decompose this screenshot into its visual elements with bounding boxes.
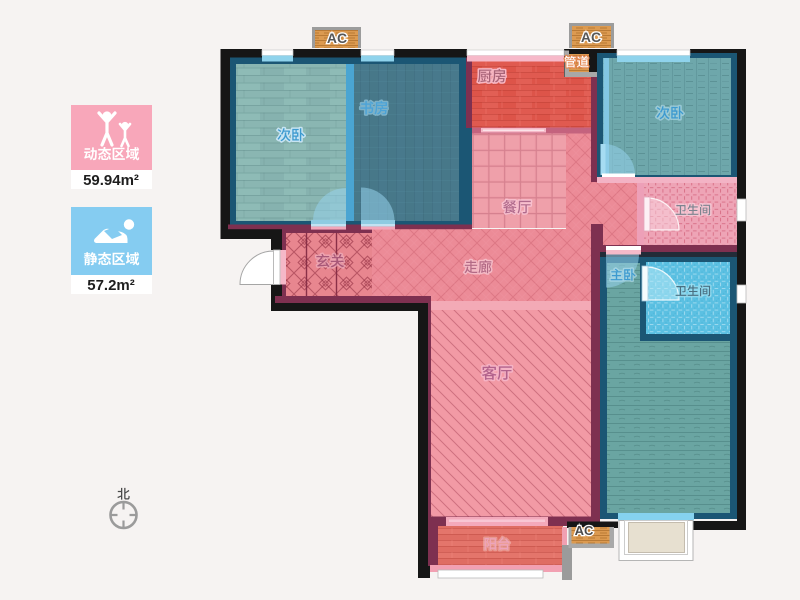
svg-text:AC: AC	[581, 29, 601, 45]
svg-text:AC: AC	[327, 30, 347, 46]
svg-text:AC: AC	[575, 523, 594, 538]
svg-text:59.94m²: 59.94m²	[83, 172, 139, 189]
svg-text:57.2m²: 57.2m²	[87, 277, 135, 294]
